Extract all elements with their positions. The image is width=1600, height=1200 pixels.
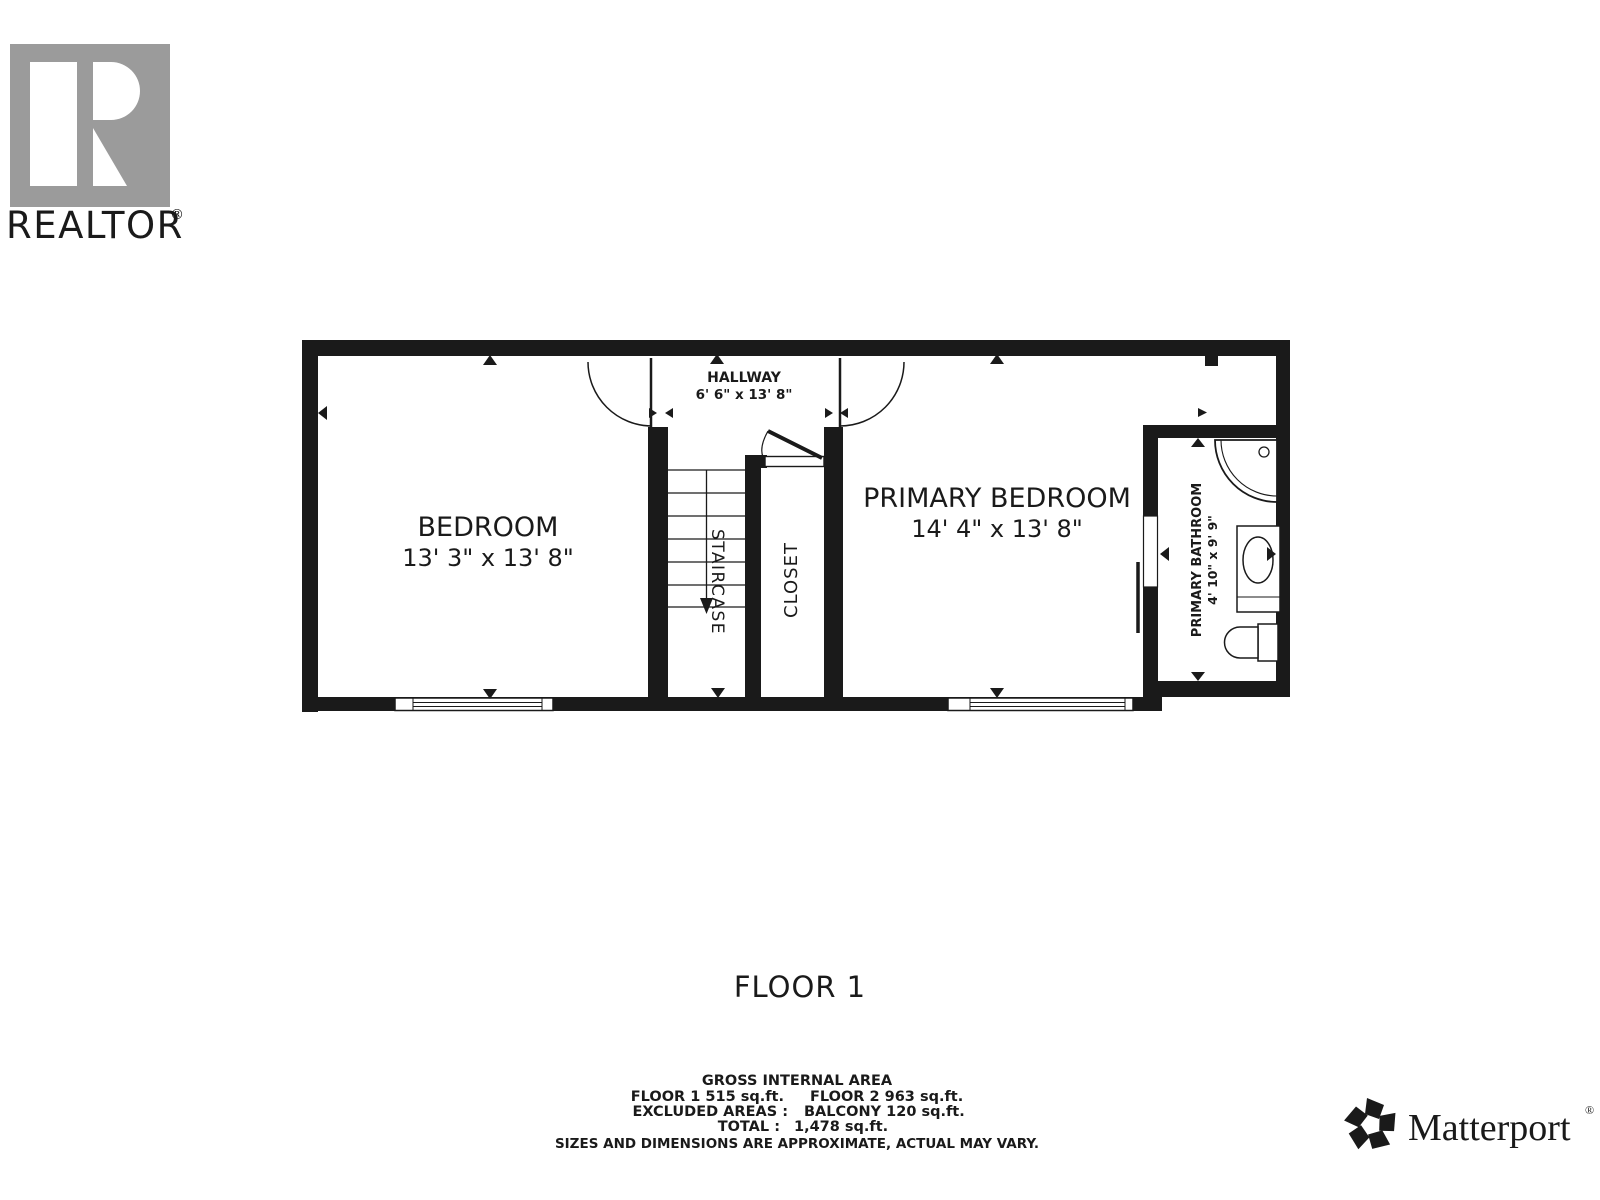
hallway-label: HALLWAY (707, 370, 782, 386)
corner-shower-icon (1215, 440, 1277, 502)
area-excluded-label: EXCLUDED AREAS : (632, 1104, 788, 1120)
marker-left-icon (1160, 547, 1169, 561)
marker-down-icon (711, 688, 725, 698)
staircase-label: STAIRCASE (707, 529, 727, 635)
floor-plan-page: REALTOR ® (0, 0, 1600, 1200)
matterport-reg-mark: ® (1585, 1103, 1594, 1117)
area-floor1: FLOOR 1 515 sq.ft. (631, 1089, 784, 1105)
closet-door-leaf (768, 431, 822, 458)
closet-door-swing-arc (762, 431, 768, 457)
marker-right-icon (1198, 408, 1207, 417)
marker-down-icon (1191, 672, 1205, 681)
floor-plan-canvas: REALTOR ® (0, 0, 1600, 1200)
marker-left-icon (665, 408, 673, 418)
floor-title: FLOOR 1 (734, 970, 866, 1004)
primary-bathroom-dims: 4' 10" x 9' 9" (1205, 515, 1220, 605)
realtor-wordmark: REALTOR (6, 204, 184, 247)
realtor-r-stem (30, 62, 77, 186)
area-heading: GROSS INTERNAL AREA (702, 1073, 893, 1089)
wall-bathroom-left-upper (1143, 425, 1158, 516)
marker-right-icon (825, 408, 833, 418)
matterport-wordmark: Matterport (1408, 1107, 1571, 1149)
staircase-treads (668, 470, 745, 607)
bathroom-door-opening (1144, 516, 1158, 587)
wall-closet-top-segment (745, 455, 767, 468)
bedroom-label: BEDROOM (418, 512, 559, 543)
marker-left-icon (318, 406, 327, 420)
marker-up-icon (483, 355, 497, 365)
wall-bedroom-hallway (648, 427, 668, 697)
wall-bathroom-left-lower (1143, 587, 1158, 711)
wall-bathroom-bottom (1145, 681, 1290, 697)
marker-up-icon (1191, 438, 1205, 447)
area-disclaimer: SIZES AND DIMENSIONS ARE APPROXIMATE, AC… (555, 1136, 1039, 1152)
primary-door-swing-arc (840, 362, 904, 426)
primary-bathroom-label: PRIMARY BATHROOM (1190, 483, 1205, 637)
area-summary: GROSS INTERNAL AREA FLOOR 1 515 sq.ft. F… (555, 1073, 1039, 1152)
vanity-sink-icon (1237, 526, 1280, 612)
wall-left (302, 340, 318, 712)
wall-closet-left (745, 455, 761, 697)
bedroom-window (395, 698, 553, 711)
marker-down-icon (990, 688, 1004, 698)
bedroom-door-swing-arc (588, 362, 652, 426)
wall-top (302, 340, 1290, 356)
realtor-logo: REALTOR ® (6, 44, 184, 247)
primary-bedroom-dims: 14' 4" x 13' 8" (911, 515, 1083, 543)
primary-bedroom-window (948, 698, 1133, 711)
wall-stub-top (1205, 356, 1218, 366)
closet-label: CLOSET (781, 542, 802, 618)
area-excluded-value: BALCONY 120 sq.ft. (804, 1104, 965, 1120)
area-total-value: 1,478 sq.ft. (794, 1119, 888, 1135)
matterport-pinwheel-icon (1343, 1098, 1400, 1154)
bedroom-dims: 13' 3" x 13' 8" (402, 544, 574, 572)
marker-right-icon (649, 408, 657, 418)
toilet-icon (1225, 624, 1279, 661)
primary-bedroom-label: PRIMARY BEDROOM (863, 483, 1131, 514)
closet-door-opening (765, 457, 824, 467)
area-floor2: FLOOR 2 963 sq.ft. (810, 1089, 963, 1105)
wall-hallway-primary (824, 427, 843, 697)
area-total-label: TOTAL : (718, 1119, 780, 1135)
wall-bathroom-top (1143, 425, 1290, 438)
matterport-logo: Matterport ® (1343, 1098, 1594, 1154)
realtor-reg-mark: ® (170, 207, 184, 223)
hallway-dims: 6' 6" x 13' 8" (696, 387, 793, 403)
